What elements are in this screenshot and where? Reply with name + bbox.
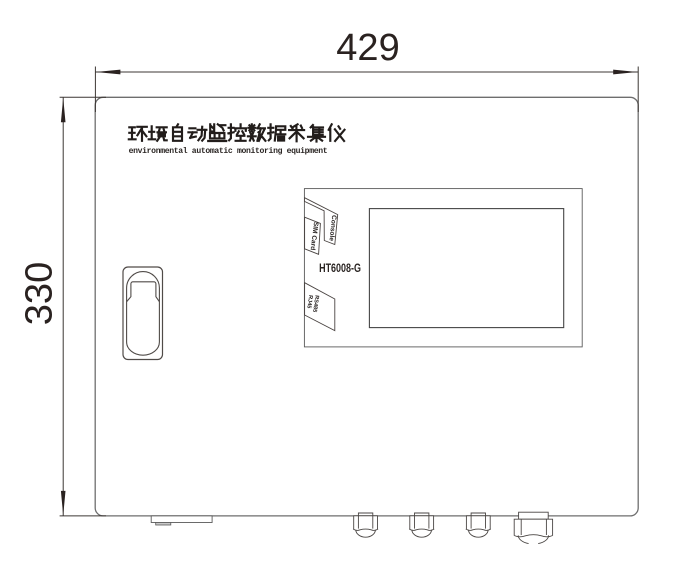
svg-text:environmental automatic monito: environmental automatic monitoring equip… <box>129 147 328 156</box>
svg-text:429: 429 <box>336 27 399 69</box>
svg-text:HT6008-G: HT6008-G <box>319 263 361 275</box>
svg-text:330: 330 <box>19 262 61 325</box>
